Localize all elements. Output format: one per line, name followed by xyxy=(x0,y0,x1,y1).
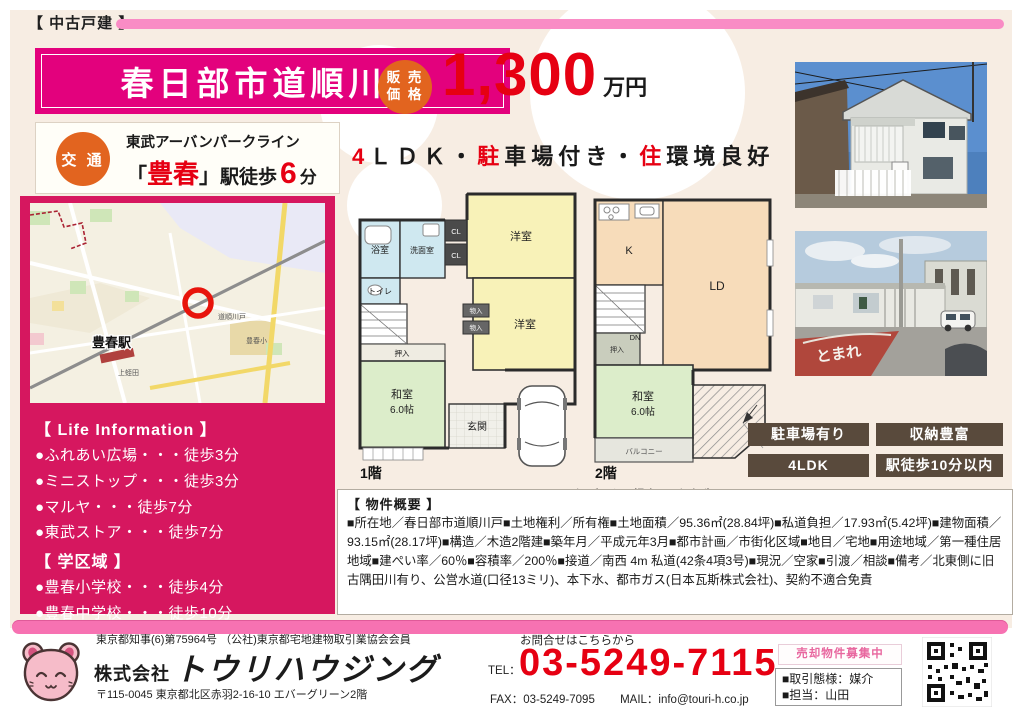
life-info-item: ●東武ストア・・・徒歩7分 xyxy=(35,520,325,546)
svg-text:トイレ: トイレ xyxy=(368,287,392,296)
svg-text:物入: 物入 xyxy=(470,323,484,332)
recruiting-badge: 売却物件募集中 xyxy=(778,644,902,665)
headline-red: 駐 xyxy=(477,144,504,169)
fax-mail-row: FAX：03-5249-7095 MAIL：info@touri-h.co.jp xyxy=(490,691,771,707)
title-frame: 春日部市道順川戸 xyxy=(41,54,504,108)
station-walk-line: 「豊春」駅徒歩6分 xyxy=(126,154,336,191)
life-info-heading: 【 Life Information 】 xyxy=(35,416,325,440)
tel-label: TEL： xyxy=(488,662,521,678)
svg-text:LD: LD xyxy=(709,279,725,293)
bracket: 「 xyxy=(126,165,147,188)
feature-tags: 駐車場有り 収納豊富 4LDK 駅徒歩10分以内 xyxy=(748,423,1003,477)
qr-code xyxy=(922,637,992,707)
map-area-label: 上蛭田 xyxy=(118,368,139,377)
overview-heading: 【 物件概要 】 xyxy=(347,494,1003,513)
life-info-item: ●ミニストップ・・・徒歩3分 xyxy=(35,469,325,495)
svg-text:玄関: 玄関 xyxy=(467,420,487,433)
svg-text:洋室: 洋室 xyxy=(510,229,532,243)
headline-red: 4 xyxy=(352,144,369,169)
footer: 東京都知事(6)第75964号 （公社)東京都宅地建物取引業協会会員 株式会社 … xyxy=(0,628,1024,723)
svg-text:6.0帖: 6.0帖 xyxy=(631,405,655,418)
feature-tag: 駅徒歩10分以内 xyxy=(876,454,1003,477)
svg-text:2階: 2階 xyxy=(595,465,617,480)
transport-badge: 交 通 xyxy=(56,132,110,186)
top-accent-bar xyxy=(116,19,1004,29)
svg-text:和室: 和室 xyxy=(391,387,413,401)
map-illustration: 豊春駅 道順川戸 上蛭田 豊春小 xyxy=(30,203,325,403)
map-area-label: 道順川戸 xyxy=(218,312,246,321)
floor-1-plan: 浴室 洗面室 CL CL 洋室 洋室 トイレ 押入 物入 物入 和室 6.0帖 … xyxy=(360,194,575,480)
price-unit: 万円 xyxy=(603,75,647,100)
map-area-label: 豊春小 xyxy=(246,336,267,345)
svg-text:和室: 和室 xyxy=(632,389,654,403)
exterior-photo xyxy=(795,62,987,208)
floor-2-plan: K LD DN 押入 和室 6.0帖 バルコニー 2階 xyxy=(595,200,773,480)
svg-text:K: K xyxy=(625,245,633,257)
map-panel: 豊春駅 道順川戸 上蛭田 豊春小 【 Life Information 】 ●ふ… xyxy=(20,196,335,614)
company-prefix: 株式会社 xyxy=(94,664,170,684)
bracket: 」 xyxy=(199,165,220,188)
transport-text: 東武アーバンパークライン 「豊春」駅徒歩6分 xyxy=(126,131,336,191)
tel-number: 03-5249-7115 xyxy=(519,642,778,685)
property-overview: 【 物件概要 】 ■所在地／春日部市道順川戸■土地権利／所有権■土地面積／95.… xyxy=(337,489,1013,615)
svg-text:浴室: 浴室 xyxy=(371,244,389,255)
flyer-page: 【 中古戸建 】 春日部市道順川戸 交 通 東武アーバンパークライン 「豊春」駅… xyxy=(0,0,1024,723)
agent-name: ■担当：山田 xyxy=(782,687,895,703)
map-station-label: 豊春駅 xyxy=(92,335,132,350)
price-row: 1,300万円 xyxy=(442,40,647,109)
price-badge-line2: 価 格 xyxy=(387,87,424,104)
walk-minutes: 6 xyxy=(277,157,300,190)
overview-body: ■所在地／春日部市道順川戸■土地権利／所有権■土地面積／95.36㎡(28.84… xyxy=(347,514,1003,589)
life-info: 【 Life Information 】 ●ふれあい広場・・・徒歩3分 ●ミニス… xyxy=(35,414,325,627)
svg-text:6.0帖: 6.0帖 xyxy=(390,403,414,416)
company-name: トウリハウジング xyxy=(174,652,438,687)
company-address: 〒115-0045 東京都北区赤羽2-16-10 エバーグリーン2階 xyxy=(96,686,367,702)
svg-text:物入: 物入 xyxy=(470,306,484,315)
headline-black: ＬＤＫ・ xyxy=(369,144,477,169)
walk-label: 駅徒歩 xyxy=(220,167,277,188)
price-value: 1,300 xyxy=(442,41,597,108)
floor-plan: 浴室 洗面室 CL CL 洋室 洋室 トイレ 押入 物入 物入 和室 6.0帖 … xyxy=(345,180,775,480)
street-photo: とまれ xyxy=(795,231,987,376)
feature-tag: 駐車場有り xyxy=(748,423,869,446)
svg-text:1階: 1階 xyxy=(360,465,382,480)
location-map: 豊春駅 道順川戸 上蛭田 豊春小 xyxy=(30,203,325,403)
svg-text:CL: CL xyxy=(451,251,461,260)
svg-text:バルコニー: バルコニー xyxy=(625,447,662,456)
walk-minutes-unit: 分 xyxy=(300,168,317,187)
title-banner: 春日部市道順川戸 xyxy=(35,48,510,114)
company-name-row: 株式会社 トウリハウジング xyxy=(94,644,438,689)
mascot-logo-icon xyxy=(20,640,82,704)
svg-text:押入: 押入 xyxy=(395,348,410,358)
feature-tag: 4LDK xyxy=(748,454,869,477)
headline-red: 住 xyxy=(639,144,666,169)
mail-address: MAIL：info@touri-h.co.jp xyxy=(620,694,749,706)
catch-copy: 4ＬＤＫ・駐車場付き・住環境良好 xyxy=(352,139,774,171)
flyer-content: 【 中古戸建 】 春日部市道順川戸 交 通 東武アーバンパークライン 「豊春」駅… xyxy=(10,10,1012,640)
price-badge-line1: 販 売 xyxy=(387,70,424,87)
headline-black: 環境良好 xyxy=(666,144,774,169)
headline-black: 車場付き・ xyxy=(504,144,639,169)
life-info-item: ●ふれあい広場・・・徒歩3分 xyxy=(35,443,325,469)
station-name: 豊春 xyxy=(147,159,199,189)
svg-text:DN: DN xyxy=(630,333,641,342)
fax-number: FAX：03-5249-7095 xyxy=(490,694,595,706)
life-info-item: ●マルヤ・・・徒歩7分 xyxy=(35,495,325,521)
svg-text:洋室: 洋室 xyxy=(514,317,536,331)
trade-type: ■取引態様：媒介 xyxy=(782,671,895,687)
school-district-item: ●豊春小学校・・・徒歩4分 xyxy=(35,575,325,601)
trade-info-box: ■取引態様：媒介 ■担当：山田 xyxy=(775,668,902,706)
svg-text:CL: CL xyxy=(451,227,461,236)
rail-line-name: 東武アーバンパークライン xyxy=(126,131,336,152)
transport-box: 交 通 東武アーバンパークライン 「豊春」駅徒歩6分 xyxy=(35,122,340,194)
svg-text:洗面室: 洗面室 xyxy=(410,245,434,255)
school-district-heading: 【 学区域 】 xyxy=(35,548,325,572)
feature-tag: 収納豊富 xyxy=(876,423,1003,446)
price-badge: 販 売 価 格 xyxy=(378,60,432,114)
svg-text:押入: 押入 xyxy=(610,345,624,354)
car-icon xyxy=(517,386,567,466)
bottom-accent-bar xyxy=(12,620,1008,634)
